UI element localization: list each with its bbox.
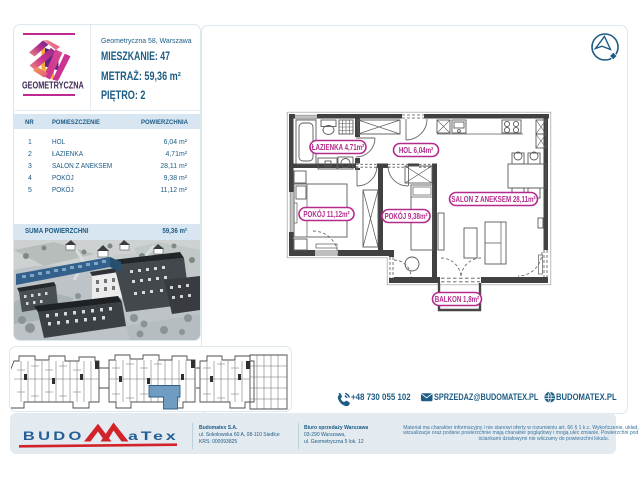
svg-text:HOL 6,04m²: HOL 6,04m² — [399, 145, 434, 155]
svg-text:BUDO: BUDO — [23, 430, 85, 444]
svg-text:POKÓJ 11,12m²: POKÓJ 11,12m² — [303, 209, 350, 219]
svg-text:BALKON 1,8m²: BALKON 1,8m² — [435, 294, 480, 304]
svg-text:SALON Z ANEKSEM 28,11m²: SALON Z ANEKSEM 28,11m² — [451, 194, 536, 204]
svg-text:aTex: aTex — [128, 429, 179, 443]
svg-text:ŁAZIENKA 4,71m²: ŁAZIENKA 4,71m² — [312, 142, 365, 152]
svg-text:POKÓJ 9,38m²: POKÓJ 9,38m² — [384, 211, 428, 221]
